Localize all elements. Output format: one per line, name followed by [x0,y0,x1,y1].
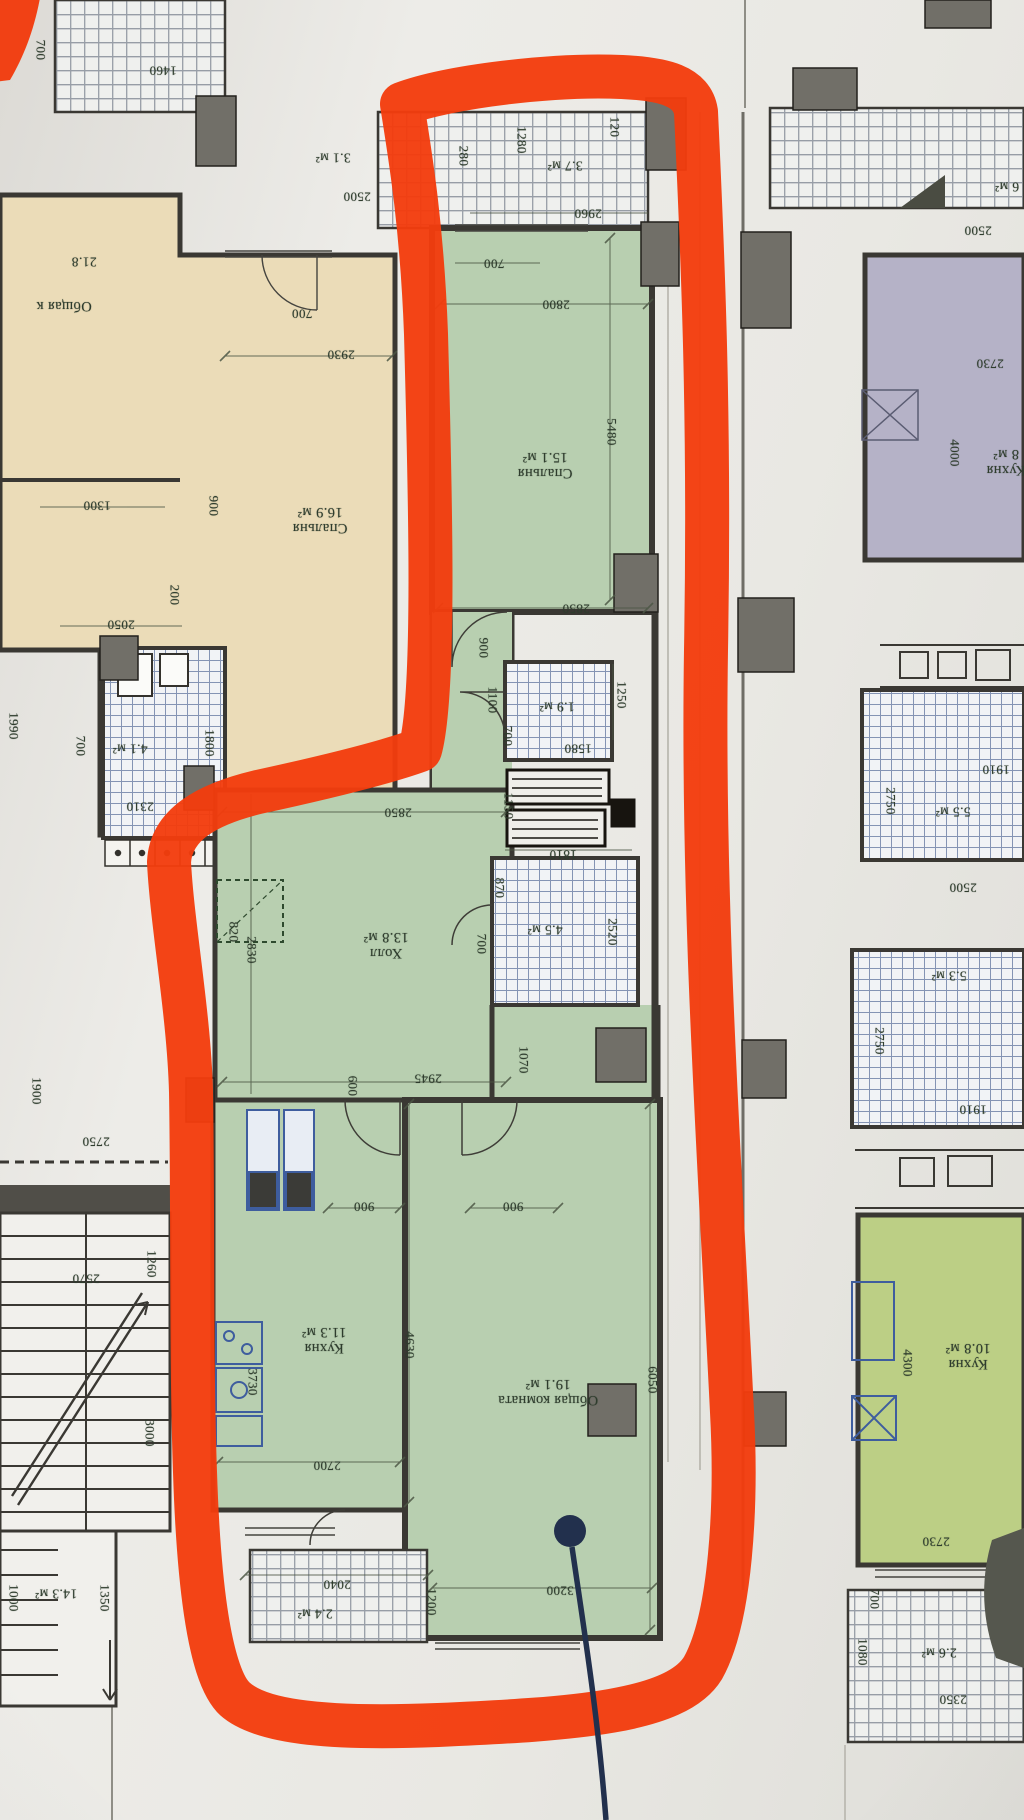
annotation-overlay [0,0,1024,1820]
floorplan-photo: 250028012803.7 м²120296070028005480Спаль… [0,0,1024,1820]
location-pin [554,1515,606,1820]
red-marker-corner [0,0,40,82]
red-marker-outline [169,77,734,1727]
